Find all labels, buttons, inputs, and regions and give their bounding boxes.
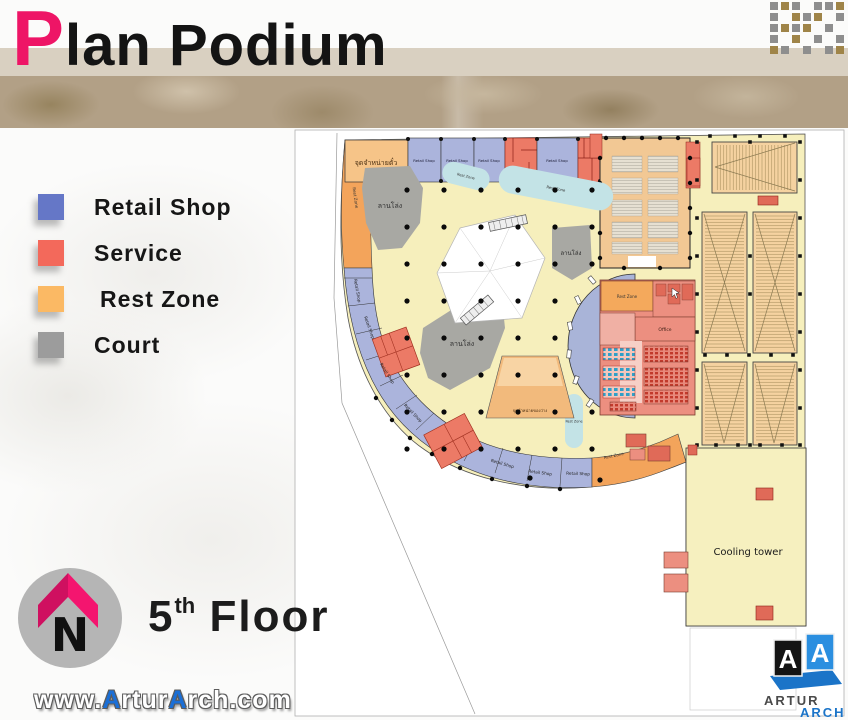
legend-label: Rest Zone (100, 286, 220, 313)
rest-zone-swatch (38, 286, 64, 312)
seat-grid (644, 368, 688, 386)
theater-east-3 (702, 362, 747, 445)
legend-item-retail-shop: Retail Shop (38, 184, 232, 230)
service-unit (590, 134, 602, 158)
title-rest: lan Podium (65, 13, 388, 78)
annex-room (664, 574, 688, 592)
legend-item-court: Court (38, 322, 232, 368)
pool-label: Rest Zone (565, 420, 582, 424)
legend-item-rest-zone: Rest Zone (38, 276, 232, 322)
court-label: ลานโล่ง (378, 201, 402, 210)
title-initial: P (12, 0, 65, 82)
artur-arch-logo: A A ARTUR ARCH (756, 632, 848, 720)
court-label: ลานโล่ง (561, 249, 582, 257)
logo-letter: A (779, 644, 798, 674)
page-title: Plan Podium (12, 0, 388, 84)
retail-shop-swatch (38, 194, 64, 220)
core-room-w (600, 313, 635, 345)
theater-east-2 (753, 212, 797, 353)
core-rooms-ne (653, 281, 695, 317)
legend-item-service: Service (38, 230, 232, 276)
legend: Retail Shop Service Rest Zone Court (38, 184, 232, 368)
court-label: ลานโล่ง (450, 339, 474, 348)
north-compass: N (18, 568, 122, 668)
office-label: Office (658, 327, 671, 333)
court-swatch (38, 332, 64, 358)
shop-label: Retail Shop (546, 158, 568, 163)
slide: Plan Podium Retail Shop Service Res (0, 0, 848, 720)
header-texture-band (0, 76, 848, 128)
legend-label: Service (94, 240, 183, 267)
logo-name-bottom: ARCH (800, 705, 846, 720)
legend-label: Court (94, 332, 160, 359)
core-rest-label: Rest Zone (617, 294, 638, 299)
compass-letter: N (18, 608, 122, 662)
mosaic-decoration (768, 0, 846, 58)
floor-ordinal: th (174, 593, 195, 618)
legend-label: Retail Shop (94, 194, 232, 221)
shop-label: Retail Shop (478, 158, 500, 163)
theater-east-4 (753, 362, 797, 445)
floor-number: 5 (148, 592, 174, 641)
seat-grid (644, 390, 688, 404)
shop-label: Retail Shop (446, 158, 468, 163)
seat-grid (610, 402, 636, 411)
floor-word: Floor (209, 592, 329, 641)
hall-stage (628, 256, 656, 267)
theater-east-1 (702, 212, 747, 353)
service-swatch (38, 240, 64, 266)
seat-grid (644, 346, 688, 362)
service-unit (688, 445, 697, 455)
seat-grid (603, 366, 635, 380)
band-label: Retail Shop (566, 471, 590, 477)
service-unit (756, 606, 773, 620)
logo-letter: A (811, 638, 830, 668)
shop-label: Retail Shop (413, 158, 435, 163)
seat-grid (603, 386, 635, 398)
seat-grid (603, 348, 635, 360)
floor-label: 5th Floor (148, 592, 329, 642)
service-unit (756, 488, 773, 500)
annex-room (664, 552, 688, 568)
service-unit (758, 196, 778, 205)
cooling-tower-label: Cooling tower (713, 547, 783, 558)
ticket-label: จุดจำหน่ายตั๋ว (355, 158, 398, 167)
watermark: www.ArturArch.com (34, 686, 292, 715)
